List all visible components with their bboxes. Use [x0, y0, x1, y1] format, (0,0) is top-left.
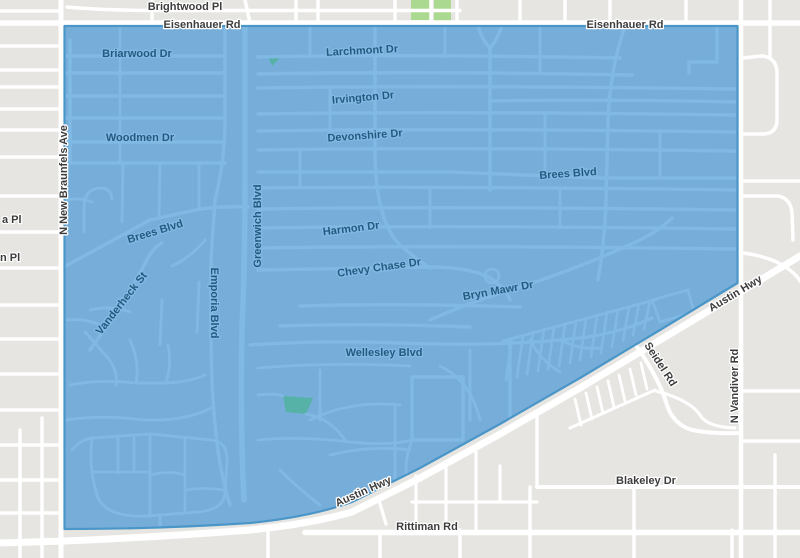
svg-text:Blakeley Dr: Blakeley Dr: [616, 475, 677, 487]
svg-text:a Pl: a Pl: [2, 214, 22, 226]
svg-text:N New Braunfels Ave: N New Braunfels Ave: [58, 125, 70, 235]
svg-text:n Pl: n Pl: [0, 252, 20, 264]
svg-text:Eisenhauer Rd: Eisenhauer Rd: [163, 19, 240, 31]
svg-text:N Vandiver Rd: N Vandiver Rd: [729, 349, 741, 424]
svg-text:Eisenhauer Rd: Eisenhauer Rd: [586, 19, 663, 31]
svg-text:Rittiman Rd: Rittiman Rd: [396, 521, 458, 533]
svg-text:Brightwood Pl: Brightwood Pl: [148, 1, 223, 13]
